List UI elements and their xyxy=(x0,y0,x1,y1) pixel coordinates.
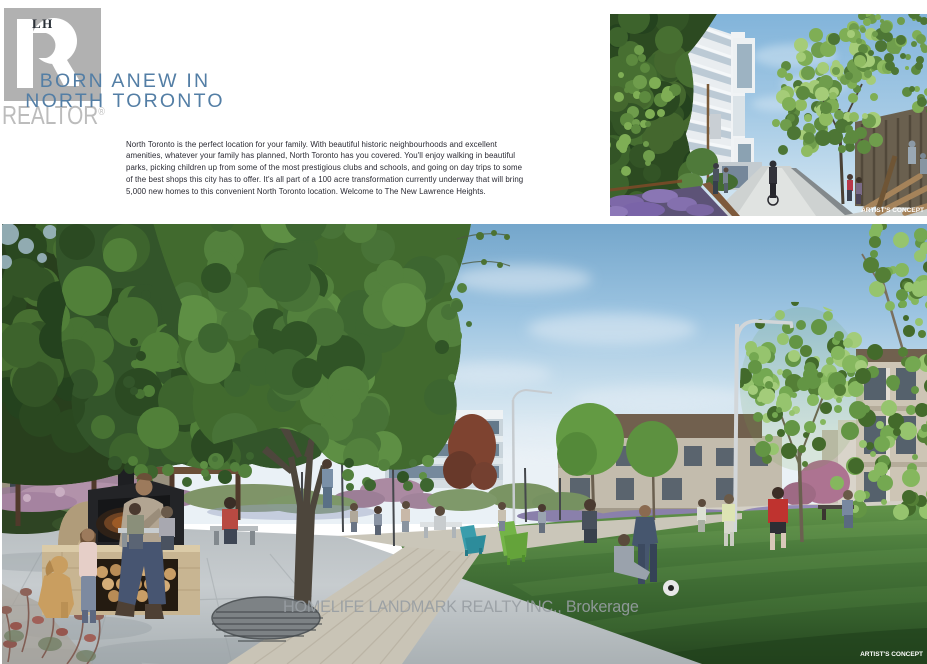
svg-text:HOMELIFE LANDMARK REALTY INC.,: HOMELIFE LANDMARK REALTY INC., Brokerage xyxy=(283,598,639,616)
svg-text:ARTIST'S CONCEPT: ARTIST'S CONCEPT xyxy=(860,651,923,658)
svg-text:ARTIST'S CONCEPT: ARTIST'S CONCEPT xyxy=(861,207,924,214)
